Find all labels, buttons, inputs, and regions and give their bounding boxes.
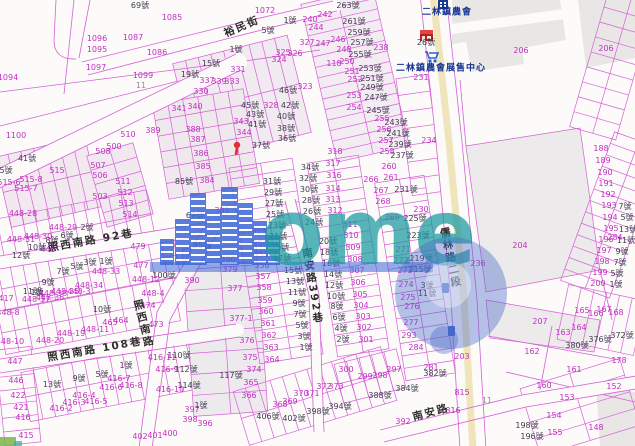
- street-lane92: [0, 228, 212, 262]
- block-farmers-association: [452, 0, 566, 72]
- map-canvas[interactable]: 69號108510961095108710861097109410991119號…: [0, 0, 635, 446]
- block-topright: [578, 0, 635, 68]
- blue-marker-icon[interactable]: [448, 326, 455, 336]
- street-nanan: [382, 382, 635, 436]
- green-area: [14, 441, 22, 446]
- storefront-icon[interactable]: [420, 30, 433, 41]
- green-area: [0, 437, 16, 446]
- cadastral-lines: [0, 0, 635, 446]
- farmers-association-building-icon: [438, 0, 448, 9]
- blue-marker-icon[interactable]: [442, 283, 449, 293]
- parcel-204: [466, 128, 600, 292]
